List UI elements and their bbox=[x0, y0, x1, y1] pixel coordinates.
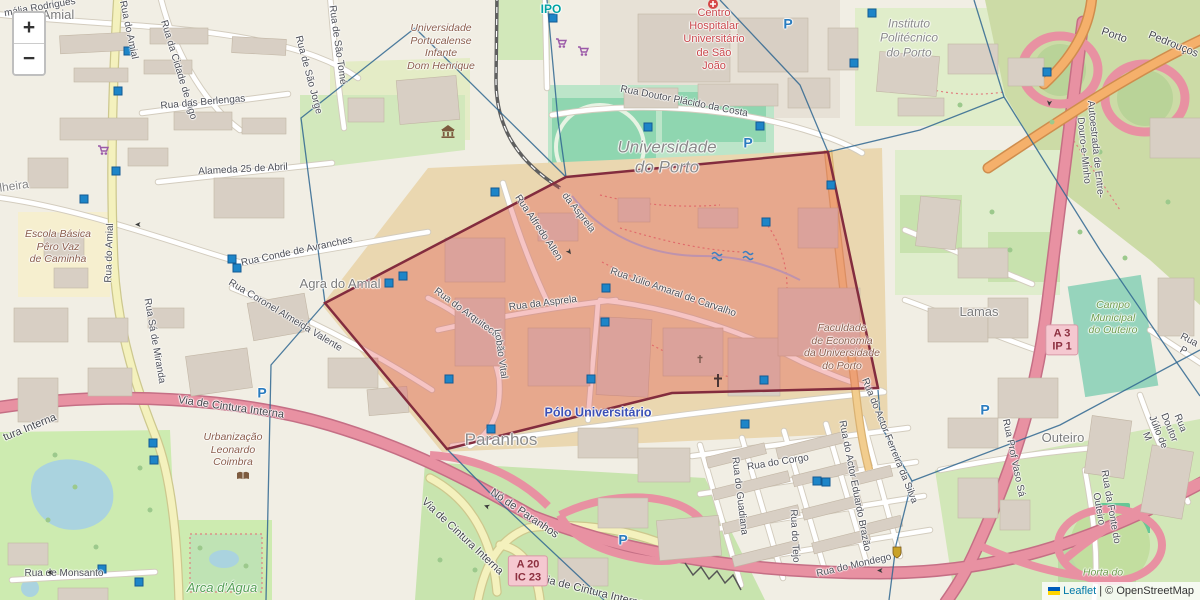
vertex-marker[interactable] bbox=[644, 123, 652, 131]
ukraine-flag-icon bbox=[1048, 587, 1060, 595]
selected-region-polygon[interactable] bbox=[325, 152, 878, 449]
vertex-marker[interactable] bbox=[762, 218, 770, 226]
vertex-marker[interactable] bbox=[114, 87, 122, 95]
voronoi-line bbox=[912, 350, 1200, 481]
vertex-marker[interactable] bbox=[80, 195, 88, 203]
vertex-marker[interactable] bbox=[1043, 68, 1051, 76]
vertex-marker[interactable] bbox=[399, 272, 407, 280]
vertex-marker[interactable] bbox=[124, 47, 132, 55]
zoom-out-button[interactable]: − bbox=[14, 44, 44, 74]
voronoi-line bbox=[447, 449, 604, 600]
zoom-in-button[interactable]: + bbox=[14, 13, 44, 44]
vertex-marker[interactable] bbox=[868, 9, 876, 17]
voronoi-line bbox=[878, 390, 912, 481]
vertex-marker[interactable] bbox=[822, 478, 830, 486]
vertex-marker[interactable] bbox=[233, 264, 241, 272]
voronoi-line bbox=[415, 28, 566, 177]
voronoi-line bbox=[974, 0, 1004, 97]
vertex-marker[interactable] bbox=[135, 578, 143, 586]
voronoi-line bbox=[266, 303, 325, 600]
book-icon bbox=[237, 472, 249, 480]
voronoi-line bbox=[547, 0, 566, 177]
vertex-marker[interactable] bbox=[445, 375, 453, 383]
vertex-marker[interactable] bbox=[601, 318, 609, 326]
overlay-layer bbox=[0, 0, 1200, 600]
vertex-marker[interactable] bbox=[549, 14, 557, 22]
shield-icon bbox=[893, 547, 901, 558]
zoom-control: + − bbox=[12, 11, 46, 76]
vertex-marker[interactable] bbox=[587, 375, 595, 383]
vertex-marker[interactable] bbox=[150, 456, 158, 464]
cart-icon bbox=[556, 39, 566, 48]
vertex-marker[interactable] bbox=[827, 181, 835, 189]
cart-icon bbox=[578, 47, 588, 56]
map[interactable]: mália RodriguesAmialRua do AmialRua da C… bbox=[0, 0, 1200, 600]
cart-icon bbox=[98, 146, 108, 155]
museum-icon bbox=[441, 125, 455, 138]
attribution-separator: | bbox=[1099, 585, 1102, 597]
vertex-marker[interactable] bbox=[491, 188, 499, 196]
vertex-marker[interactable] bbox=[98, 565, 106, 573]
voronoi-line bbox=[720, 0, 828, 152]
vertex-marker[interactable] bbox=[760, 376, 768, 384]
vertex-marker[interactable] bbox=[850, 59, 858, 67]
voronoi-line bbox=[301, 28, 415, 303]
voronoi-line bbox=[889, 481, 912, 600]
vertex-marker[interactable] bbox=[112, 167, 120, 175]
attribution-bar: Leaflet | © OpenStreetMap bbox=[1042, 582, 1200, 600]
vertex-marker[interactable] bbox=[602, 284, 610, 292]
voronoi-line bbox=[1004, 97, 1200, 396]
vertex-marker[interactable] bbox=[385, 279, 393, 287]
vertex-marker[interactable] bbox=[487, 425, 495, 433]
hospital-dot-icon bbox=[708, 0, 718, 9]
vertex-marker[interactable] bbox=[228, 255, 236, 263]
voronoi-line bbox=[828, 97, 1004, 152]
leaflet-link[interactable]: Leaflet bbox=[1063, 585, 1096, 597]
vertex-marker[interactable] bbox=[756, 122, 764, 130]
vertex-marker[interactable] bbox=[149, 439, 157, 447]
vertex-marker[interactable] bbox=[741, 420, 749, 428]
vertex-marker[interactable] bbox=[813, 477, 821, 485]
osm-credit: © OpenStreetMap bbox=[1105, 585, 1194, 597]
